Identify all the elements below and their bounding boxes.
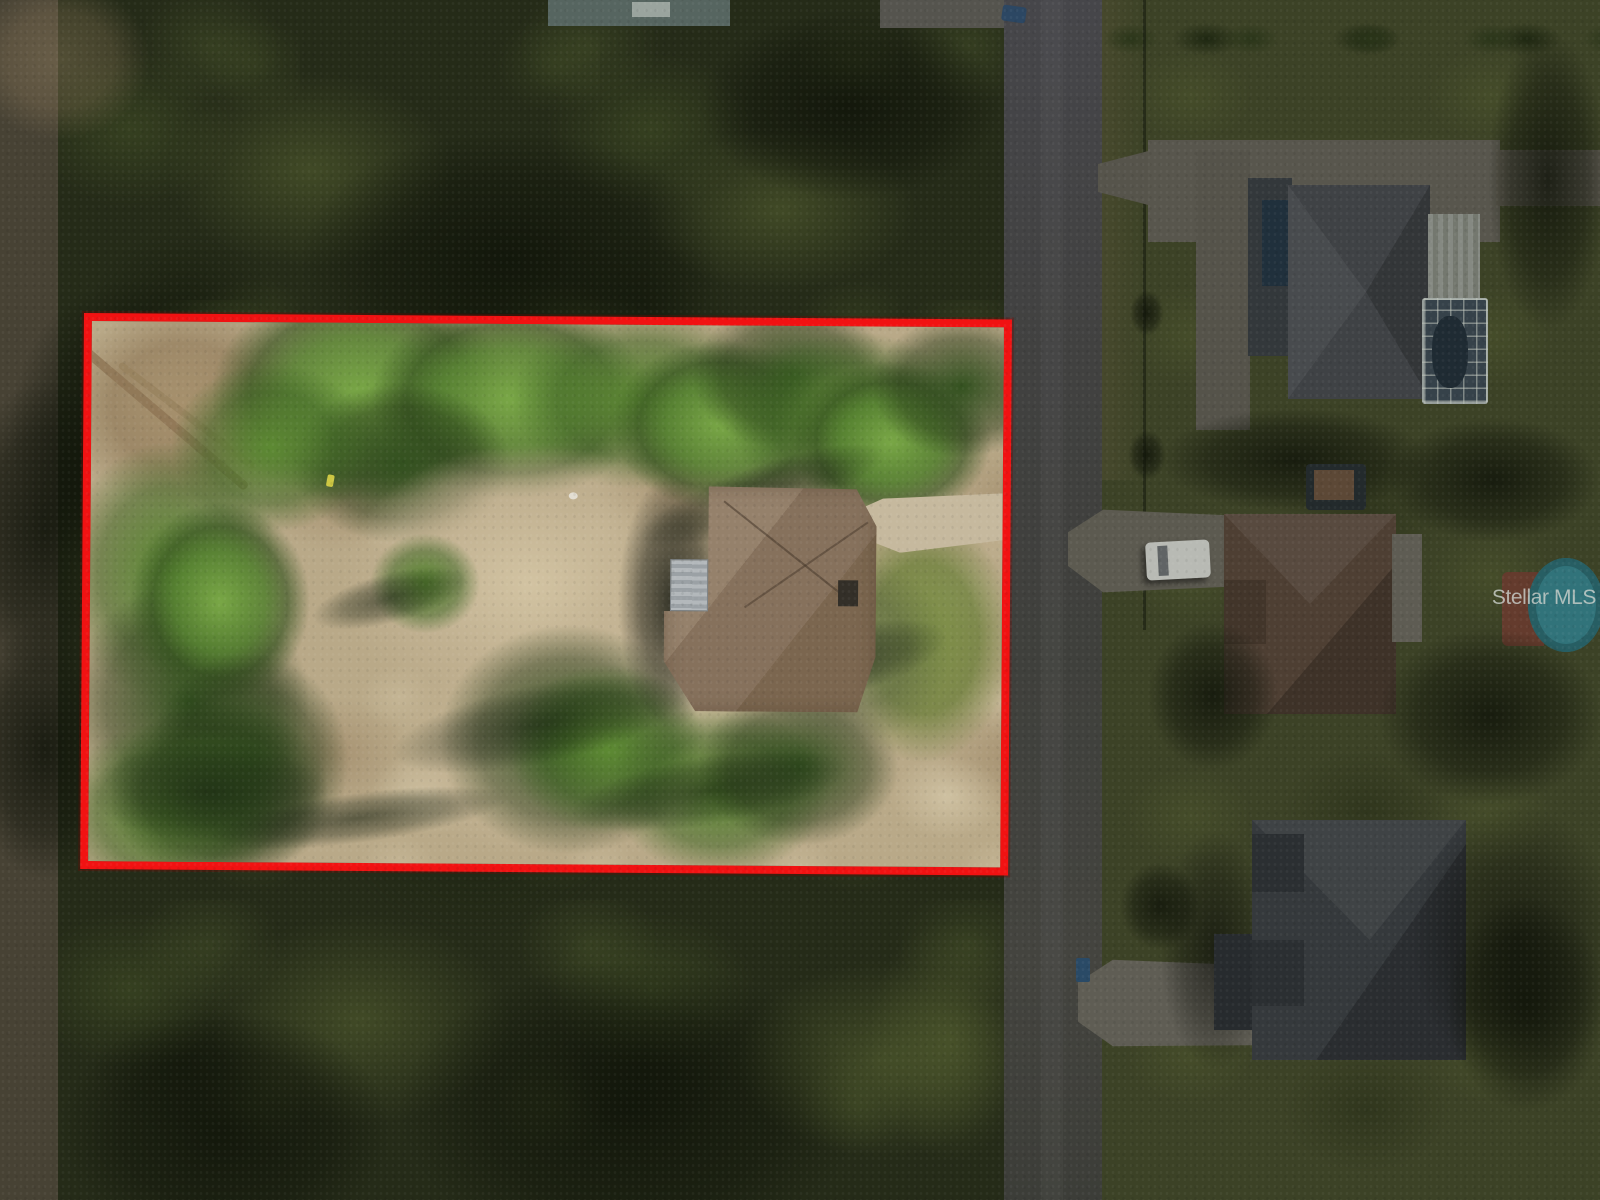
aerial-photo: Stellar MLS [0,0,1600,1200]
porch-gable [1252,940,1304,1006]
utility-trailer [1306,464,1366,510]
stellar-mls-watermark: Stellar MLS [1492,586,1596,610]
pavement-top [880,0,1010,28]
property-boundary [80,313,1012,875]
neighbor-house-top-roof [1288,185,1430,399]
lanai-roof [1428,214,1480,306]
tree-canopy [1388,418,1600,542]
swimming-pool [1432,316,1468,388]
porch-inset [838,580,858,606]
trailer-load [1314,470,1354,500]
metal-garage-roof [670,559,708,611]
rooftop-skylight [632,2,670,17]
white-object [569,492,578,499]
pool-screen-enclosure [1422,298,1488,404]
side-walkway [1196,150,1250,430]
tree-canopy [1378,628,1600,804]
truck-windshield [1157,546,1169,576]
white-pickup-truck [1145,539,1211,580]
tree-canopy [1160,408,1430,512]
tree-canopy [1488,30,1600,330]
property-lot [88,321,1004,867]
tree-canopy [1148,622,1278,770]
rear-patio [1392,534,1422,642]
tree-canopy [1120,862,1200,950]
solar-panels [1262,200,1290,286]
road-shoulder [1102,0,1144,480]
trash-bin-blue [1001,4,1027,23]
fence-bush [1130,290,1164,336]
tree-canopy [700,10,1000,200]
porch-gable [1252,834,1304,892]
tree-canopy [1446,896,1600,1112]
trash-bin-blue [1076,958,1090,982]
